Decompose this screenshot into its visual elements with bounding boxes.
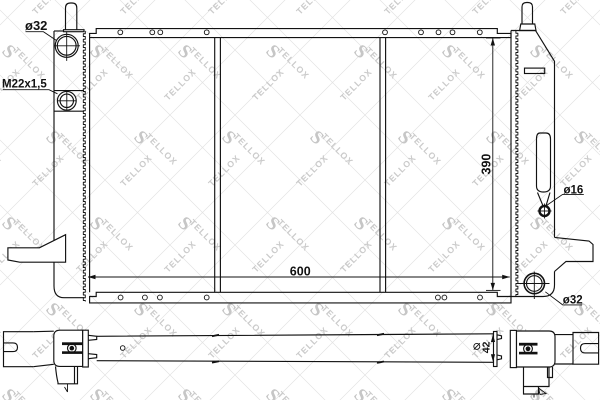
svg-text:ø16: ø16 [564, 184, 584, 196]
svg-text:ø32: ø32 [563, 294, 583, 306]
svg-text:600: 600 [290, 264, 311, 278]
svg-text:390: 390 [479, 154, 493, 175]
svg-text:M22x1,5: M22x1,5 [2, 79, 47, 91]
svg-text:ø32: ø32 [25, 18, 47, 33]
svg-text:42: 42 [480, 341, 492, 353]
